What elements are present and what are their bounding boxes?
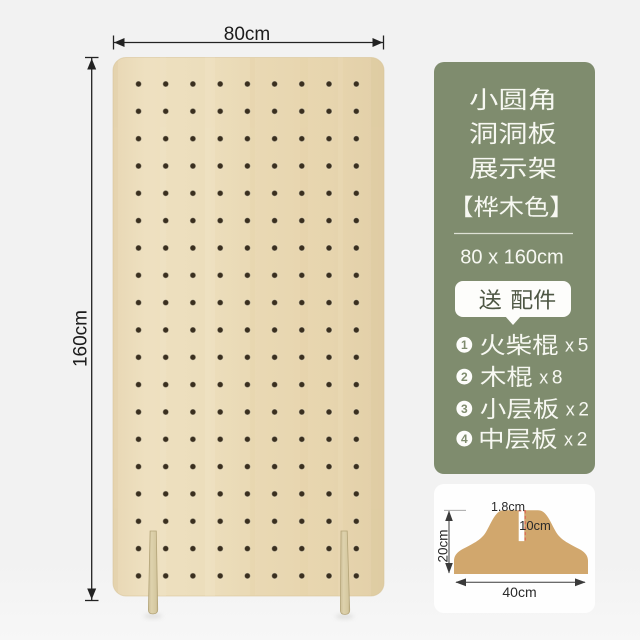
- svg-text:5: 5: [578, 336, 589, 357]
- svg-text:1: 1: [461, 338, 468, 352]
- svg-text:3: 3: [461, 402, 468, 416]
- svg-text:80 x 160cm: 80 x 160cm: [460, 246, 563, 268]
- svg-text:80cm: 80cm: [224, 24, 270, 45]
- svg-text:160cm: 160cm: [71, 310, 92, 367]
- svg-text:x: x: [539, 368, 548, 388]
- svg-text:4: 4: [461, 432, 468, 446]
- svg-text:2: 2: [577, 430, 588, 451]
- svg-text:1.8cm: 1.8cm: [491, 500, 525, 514]
- svg-text:x: x: [564, 430, 573, 450]
- svg-text:40cm: 40cm: [502, 584, 536, 600]
- svg-text:2: 2: [578, 400, 589, 421]
- svg-text:8: 8: [552, 368, 563, 389]
- svg-text:10cm: 10cm: [519, 518, 551, 533]
- svg-text:x: x: [565, 336, 574, 356]
- svg-text:2: 2: [461, 370, 468, 384]
- svg-text:20cm: 20cm: [435, 529, 450, 562]
- svg-text:x: x: [566, 400, 575, 420]
